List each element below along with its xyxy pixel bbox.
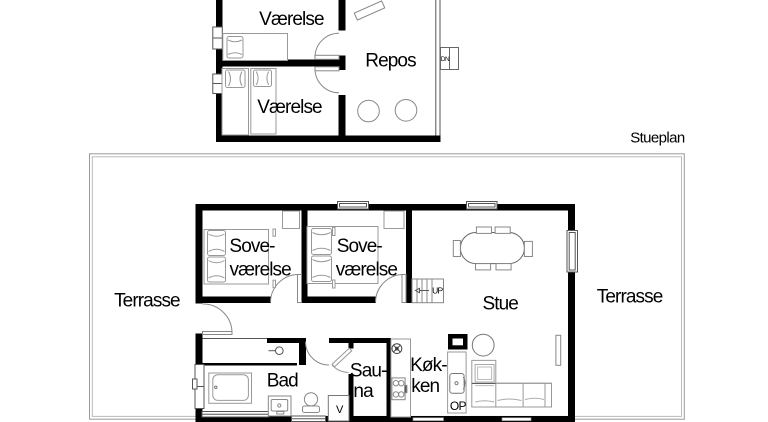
svg-text:Stueplan: Stueplan [630,130,685,147]
svg-text:Terrasse: Terrasse [597,287,663,308]
svg-text:na: na [353,381,374,402]
svg-text:Værelse: Værelse [257,97,322,118]
svg-text:Repos: Repos [365,51,416,72]
svg-text:værelse: værelse [230,259,292,280]
svg-text:UP: UP [432,286,443,296]
svg-text:V: V [336,404,344,416]
svg-text:Sove-: Sove- [337,236,383,257]
svg-text:OP: OP [450,399,467,413]
svg-text:Stue: Stue [482,294,518,315]
svg-text:Værelse: Værelse [259,9,324,30]
svg-text:Bad: Bad [267,371,298,392]
svg-text:DN: DN [441,56,450,63]
svg-text:Sau-: Sau- [350,361,387,382]
svg-text:Terrasse: Terrasse [114,291,180,312]
svg-text:Sove-: Sove- [229,236,275,257]
svg-text:Køk-: Køk- [410,355,447,376]
svg-text:ken: ken [411,376,439,397]
svg-text:værelse: værelse [336,259,398,280]
